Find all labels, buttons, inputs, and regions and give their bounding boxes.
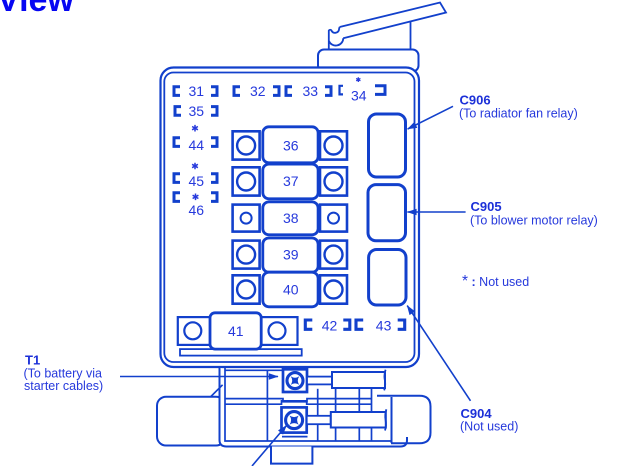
svg-text:41: 41 <box>228 323 244 339</box>
svg-text:32: 32 <box>250 83 266 99</box>
svg-text:36: 36 <box>283 137 299 153</box>
svg-text:31: 31 <box>189 83 205 99</box>
svg-text:39: 39 <box>283 246 299 262</box>
svg-text:40: 40 <box>283 281 299 297</box>
svg-text:43: 43 <box>376 317 392 333</box>
svg-text:42: 42 <box>322 317 338 333</box>
svg-text:33: 33 <box>303 83 319 99</box>
svg-text:C906: C906 <box>460 93 491 108</box>
svg-text:35: 35 <box>189 103 205 119</box>
svg-text:(To blower motor relay): (To blower motor relay) <box>470 214 598 228</box>
svg-text:46: 46 <box>189 202 205 218</box>
svg-text:* : Not used: * : Not used <box>462 273 529 290</box>
svg-text:38: 38 <box>283 210 299 226</box>
svg-text:44: 44 <box>189 137 205 153</box>
svg-text:C905: C905 <box>471 199 502 214</box>
svg-text:(To radiator fan relay): (To radiator fan relay) <box>459 107 578 121</box>
svg-text:T1: T1 <box>25 353 40 368</box>
svg-text:starter cables): starter cables) <box>24 379 103 393</box>
svg-text:(Not used): (Not used) <box>460 420 518 434</box>
svg-text:View: View <box>0 0 74 19</box>
svg-text:45: 45 <box>189 173 205 189</box>
svg-text:34: 34 <box>351 88 367 104</box>
svg-text:37: 37 <box>283 173 299 189</box>
